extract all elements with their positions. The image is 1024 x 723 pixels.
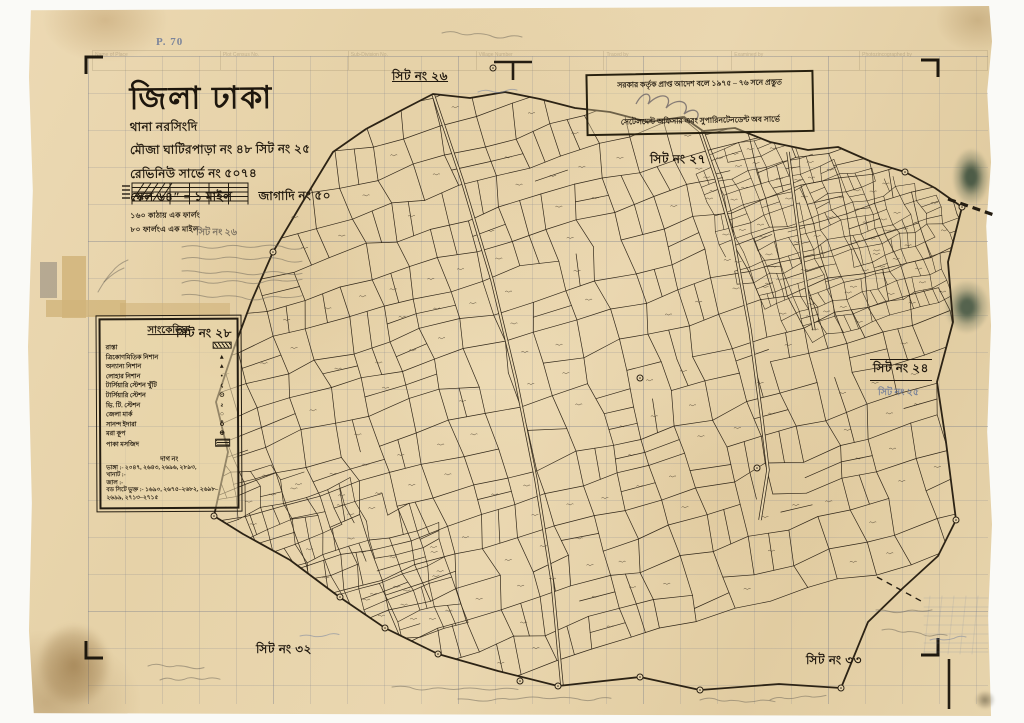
printed-form-header-strip: Name of Place Plot Census No. Sub-Divisi… — [92, 50, 988, 71]
sheet-label-left: সিট নং ২৮ — [176, 325, 232, 345]
repair-tape — [120, 303, 230, 316]
legend-item-symbol: ƨ — [212, 400, 232, 410]
legend-item-symbol: ○ — [212, 410, 232, 420]
scale-note-1: ১৬০ কাঠায় এক ফার্লং — [130, 209, 400, 223]
legend-item-label: ত্রিকোণমিতিক নিশান — [106, 353, 159, 363]
legend-item-symbol: ⊙ — [212, 391, 232, 401]
pencil-note-heading: সিট নং ২৬ — [196, 226, 237, 241]
government-stamp-box: সরকার কর্তৃক প্রাপ্ত আদেশ বলে ১৯৭৫ – ৭৬ … — [585, 70, 814, 136]
sheet-label-upper-right: সিট নং ২৭ — [650, 151, 706, 171]
legend-item-symbol: ▲ — [212, 352, 232, 362]
sheet-label-right: সিট নং ২৪ — [870, 359, 932, 381]
jl-number: জাগাদি নং ৫০ — [258, 188, 331, 209]
legend-item-label: অন্যান্য নিশান — [106, 362, 141, 372]
repair-tape — [46, 300, 126, 317]
scale-note-2: ৮০ ফার্লংএ এক মাইল — [130, 223, 400, 237]
stamp-line-2: সেটেলমেন্ট অফিসার এবং সুপারিনটেনডেন্ট অব… — [591, 113, 809, 130]
sheet-label-bottom-left: সিট নং ৩২ — [256, 641, 312, 661]
legend-item-label: লোহার নিশান — [106, 372, 141, 382]
form-column: Photozincographed by — [859, 50, 988, 71]
page-mark-pencil: P. 70 — [156, 36, 183, 48]
title-block: জিলা ঢাকা থানা নরসিংদি মৌজা ঘাটিরপাড়া ন… — [129, 81, 400, 237]
form-column: Traced by — [603, 50, 731, 71]
legend-box: সাংকেতিক রাস্তা ত্রিকোণমিতিক নিশান ▲ অন্… — [99, 318, 240, 509]
mouza-line: মৌজা ঘাটিরপাড়া নং ৪৮ সিট নং ২৫ — [130, 140, 400, 162]
district-title: জিলা ঢাকা — [129, 81, 399, 115]
scanned-map-sheet: Name of Place Plot Census No. Sub-Divisi… — [0, 0, 1024, 723]
form-column: Name of Place — [92, 50, 220, 71]
sheet-label-bottom-right: সিট নং ৩৩ — [806, 652, 862, 672]
scale-line: স্কেল ৬৪″ = ১ মাইল জাগাদি নং ৫০ — [130, 187, 400, 209]
legend-notes-heading: দাগ নং — [106, 452, 232, 465]
legend-item-label: মরা কূপ — [106, 430, 125, 440]
form-column: Examined by — [731, 50, 859, 71]
legend-item-label: পাকা মসজিদ — [106, 440, 139, 450]
legend-item: পাকা মসজিদ — [106, 439, 232, 451]
legend-item-symbol: ▴ — [212, 362, 232, 372]
legend-item-label: টার্সিয়ারি স্টেশন — [106, 391, 146, 401]
revenue-survey-line: রেভিনিউ সার্ভে নং ৫০৭৪ — [130, 164, 400, 186]
scale-value: স্কেল ৬৪″ = ১ মাইল — [130, 188, 232, 209]
sheet-label-top: সিট নং ২৬ — [392, 68, 448, 88]
legend-item-label: ভি. টি. স্টেশন — [106, 401, 140, 411]
repair-tape-gray — [40, 262, 57, 298]
stamp-line-1: সরকার কর্তৃক প্রাপ্ত আদেশ বলে ১৯৭৫ – ৭৬ … — [591, 76, 809, 93]
thana-line: থানা নরসিংদি — [130, 117, 400, 139]
legend-item-symbol: ⊕ — [212, 429, 232, 439]
mosque-hatch-symbol — [215, 439, 230, 447]
legend-item-symbol: ♁ — [212, 419, 232, 429]
legend-item-label: জেলা মার্ক — [106, 410, 132, 420]
sheet-label-right-pencil: সিট নং ২৫ — [878, 386, 919, 401]
legend-note: বড সিটে ভুক্ত :- ১৬৯০, ২৬৭৫–২৬৮২, ২৬৯৮–২… — [106, 487, 232, 503]
legend-item-label: সানন্দ ইদারা — [106, 420, 137, 430]
legend-item-symbol: ϛ — [212, 381, 232, 391]
form-column: Village Number — [476, 50, 604, 71]
legend-item-label: রাস্তা — [106, 343, 118, 353]
legend-item-label: টার্সিয়ারি স্টেশন খুঁটি — [106, 381, 157, 391]
legend-item-symbol: • — [212, 371, 232, 381]
form-column: Plot Census No. — [220, 50, 348, 71]
